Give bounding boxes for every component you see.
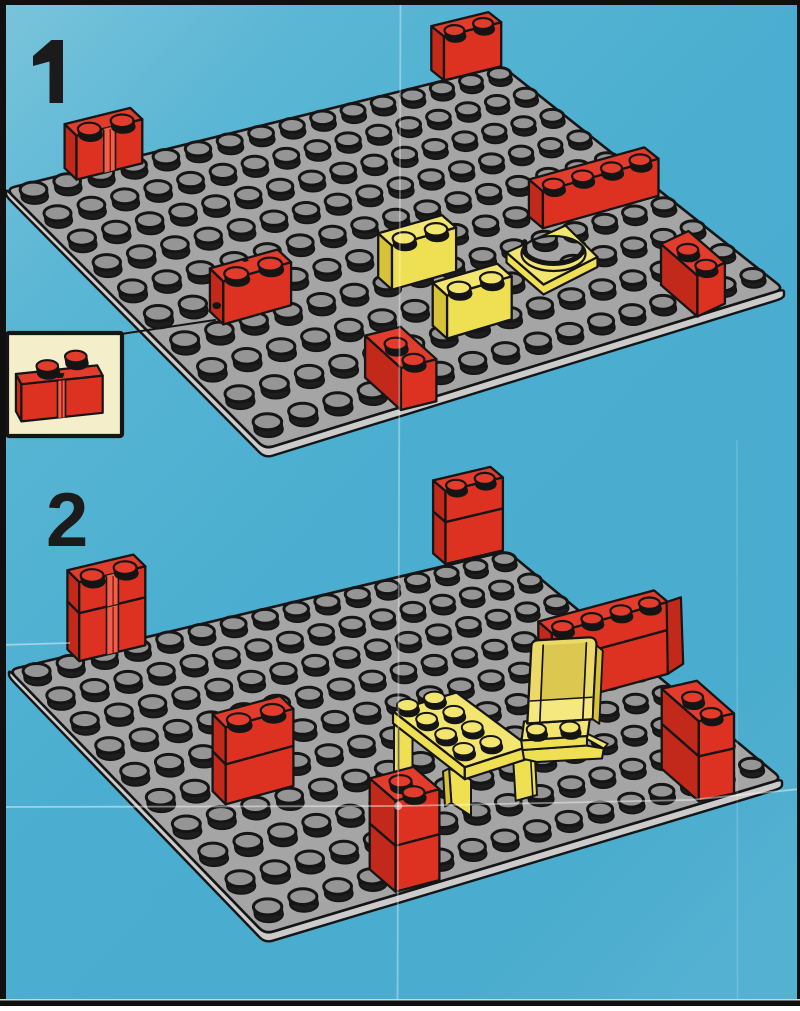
svg-text:2: 2 [46, 478, 88, 563]
